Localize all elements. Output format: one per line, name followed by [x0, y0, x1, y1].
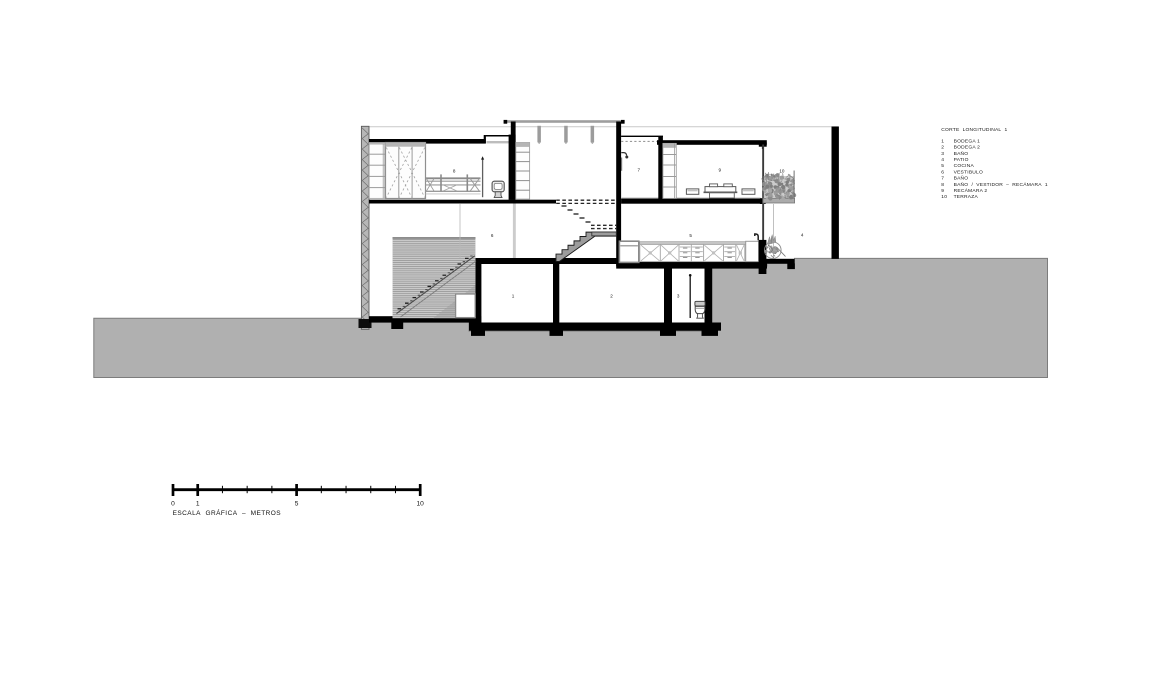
svg-text:BAÑO / VESTIDOR – RECÁMARA: BAÑO / VESTIDOR – RECÁMARA 1	[954, 181, 1048, 188]
svg-text:BODEGA 1: BODEGA 1	[954, 139, 981, 145]
svg-text:ESCALA GRÁFICA – METROS: ESCALA GRÁFICA – METROS	[173, 508, 282, 517]
svg-text:BODEGA 2: BODEGA 2	[954, 145, 981, 151]
svg-text:2: 2	[610, 294, 613, 299]
svg-text:BAÑO: BAÑO	[954, 150, 969, 157]
svg-text:7: 7	[941, 176, 944, 182]
svg-text:6: 6	[491, 233, 494, 238]
svg-text:TERRAZA: TERRAZA	[954, 194, 979, 200]
svg-text:2: 2	[941, 145, 944, 151]
svg-text:9: 9	[941, 188, 944, 194]
svg-text:7: 7	[638, 168, 641, 173]
svg-text:6: 6	[941, 169, 944, 175]
svg-text:8: 8	[941, 182, 944, 188]
svg-text:9: 9	[719, 168, 722, 173]
svg-text:BAÑO: BAÑO	[954, 175, 969, 182]
svg-text:PATIO: PATIO	[954, 157, 969, 163]
svg-text:3: 3	[941, 151, 944, 157]
svg-text:5: 5	[689, 233, 692, 238]
svg-text:5: 5	[295, 501, 299, 508]
svg-text:5: 5	[941, 163, 944, 169]
svg-text:1: 1	[941, 139, 944, 145]
svg-text:VESTIBULO: VESTIBULO	[954, 169, 983, 175]
svg-text:3: 3	[677, 294, 680, 299]
svg-text:4: 4	[801, 232, 804, 237]
svg-text:1: 1	[196, 501, 200, 508]
svg-text:CORTE LONGITUDINAL 1: CORTE LONGITUDINAL 1	[941, 127, 1007, 133]
svg-text:10: 10	[941, 194, 947, 200]
svg-text:10: 10	[779, 169, 785, 174]
svg-text:COCINA: COCINA	[954, 163, 975, 169]
svg-text:RECÁMARA 2: RECÁMARA 2	[954, 187, 988, 194]
svg-text:10: 10	[417, 501, 425, 508]
svg-text:1: 1	[512, 294, 515, 299]
svg-text:8: 8	[453, 169, 456, 174]
svg-text:4: 4	[941, 157, 944, 163]
svg-text:0: 0	[171, 501, 175, 508]
